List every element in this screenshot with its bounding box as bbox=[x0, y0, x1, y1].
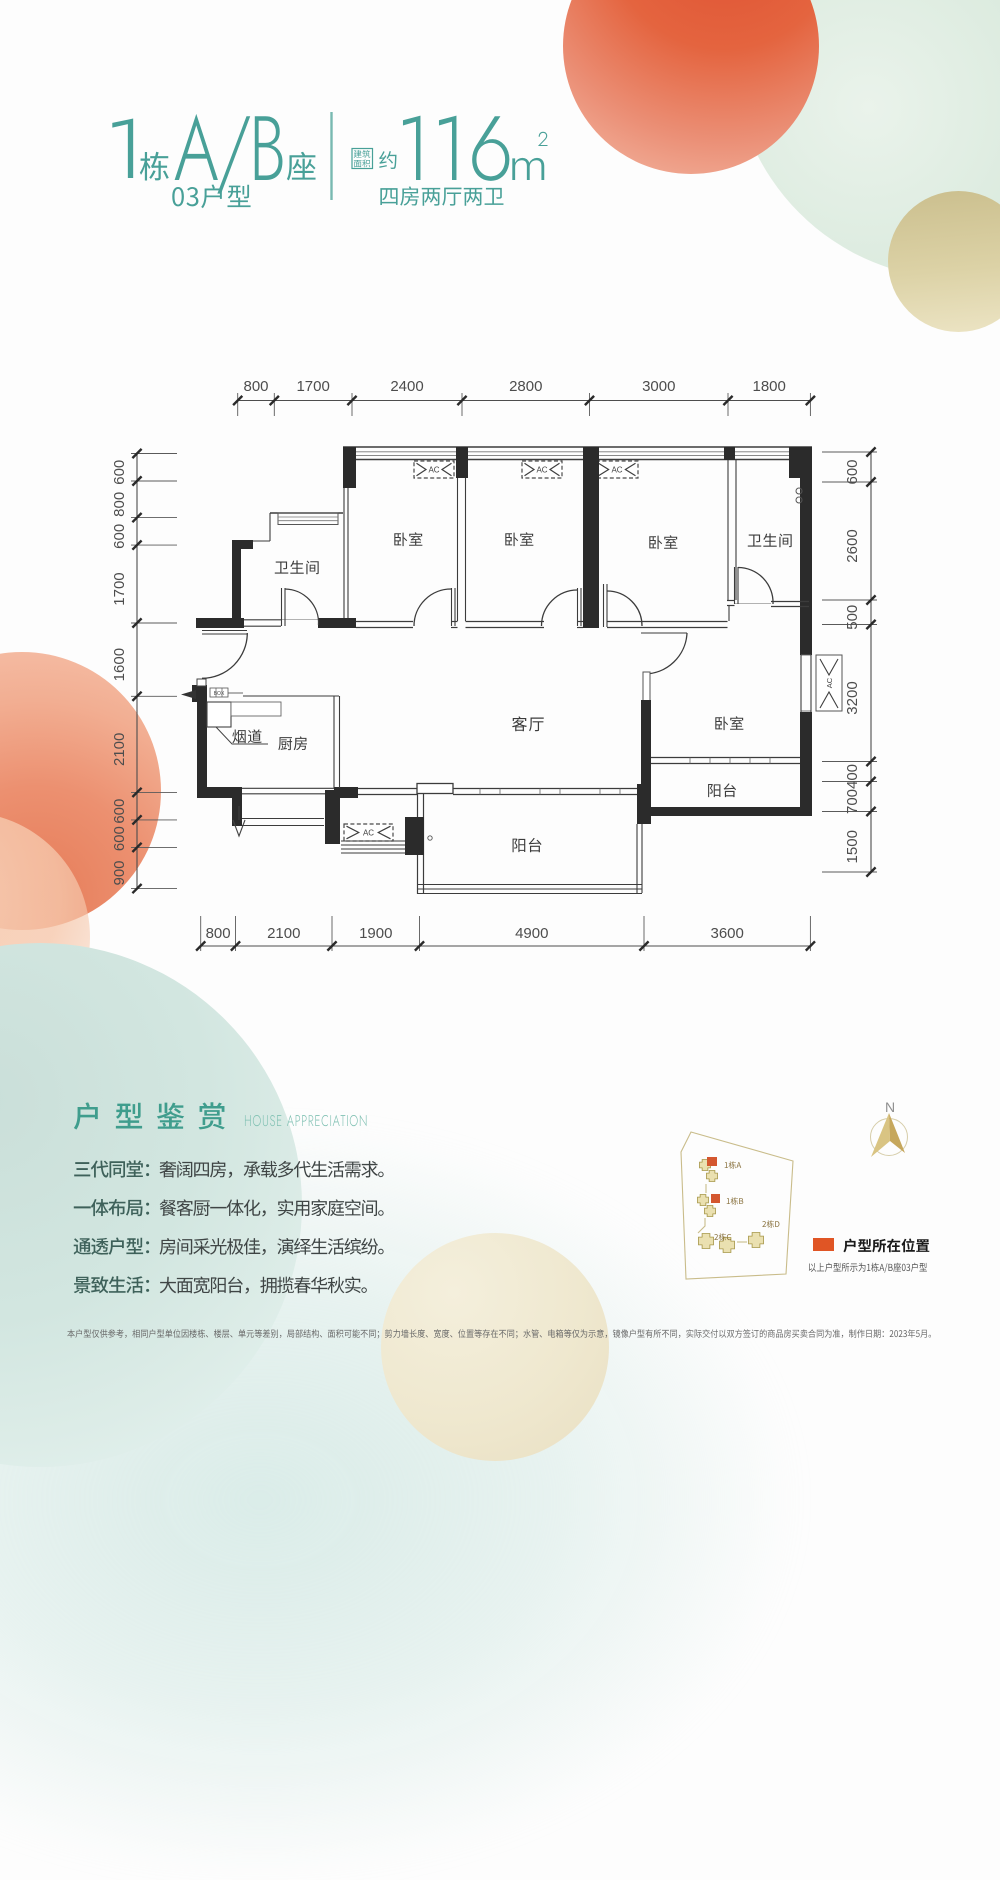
svg-text:AC: AC bbox=[611, 465, 622, 474]
svg-text:600: 600 bbox=[111, 460, 128, 485]
svg-text:2100: 2100 bbox=[111, 733, 128, 766]
svg-text:900: 900 bbox=[111, 860, 128, 885]
svg-text:2100: 2100 bbox=[267, 925, 300, 942]
svg-text:800: 800 bbox=[206, 925, 231, 942]
svg-text:1600: 1600 bbox=[111, 648, 128, 681]
svg-text:600: 600 bbox=[844, 459, 861, 484]
svg-text:600: 600 bbox=[111, 826, 128, 851]
svg-text:1500: 1500 bbox=[844, 830, 861, 863]
svg-text:700: 700 bbox=[844, 789, 861, 814]
svg-text:AC: AC bbox=[536, 465, 547, 474]
svg-text:AC: AC bbox=[825, 677, 834, 688]
svg-text:3000: 3000 bbox=[642, 378, 675, 395]
svg-text:800: 800 bbox=[111, 492, 128, 517]
svg-text:3200: 3200 bbox=[844, 681, 861, 714]
svg-text:1900: 1900 bbox=[359, 925, 392, 942]
svg-text:N: N bbox=[885, 1099, 895, 1115]
svg-text:AC: AC bbox=[428, 465, 439, 474]
svg-text:1800: 1800 bbox=[753, 378, 786, 395]
svg-text:4900: 4900 bbox=[515, 925, 548, 942]
svg-text:2800: 2800 bbox=[509, 378, 542, 395]
svg-text:3600: 3600 bbox=[711, 925, 744, 942]
svg-text:2400: 2400 bbox=[390, 378, 423, 395]
svg-text:600: 600 bbox=[111, 524, 128, 549]
svg-text:AC: AC bbox=[363, 828, 374, 837]
svg-text:1700: 1700 bbox=[296, 378, 329, 395]
svg-text:400: 400 bbox=[844, 764, 861, 789]
svg-text:800: 800 bbox=[243, 378, 268, 395]
svg-text:600: 600 bbox=[111, 799, 128, 824]
svg-text:1700: 1700 bbox=[111, 572, 128, 605]
svg-text:BOX: BOX bbox=[214, 691, 225, 697]
svg-text:500: 500 bbox=[844, 605, 861, 630]
svg-text:2600: 2600 bbox=[844, 529, 861, 562]
